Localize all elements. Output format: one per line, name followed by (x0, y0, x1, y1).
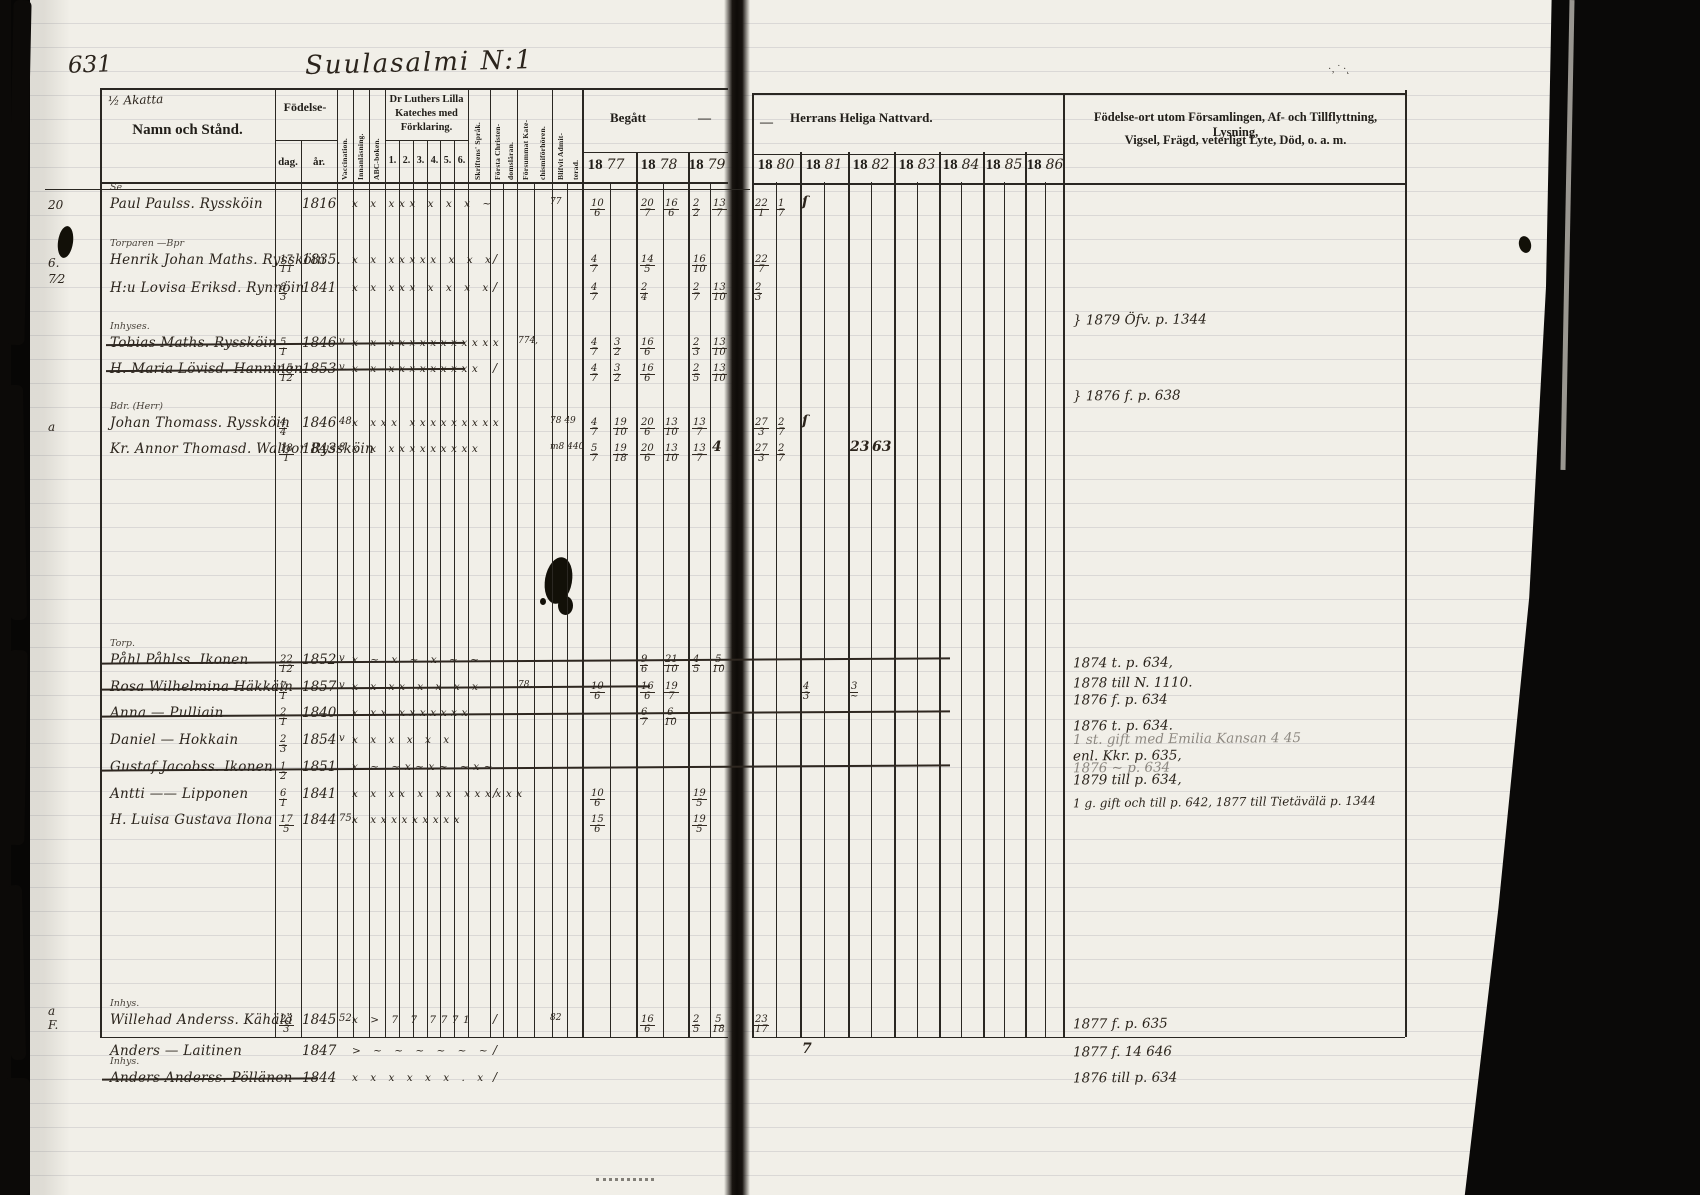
row-name: Willehad Anderss. Kähälä (110, 1012, 293, 1028)
communion-date-entry: 3~ (850, 676, 858, 701)
row-vaccination-mark: 48 (339, 416, 352, 427)
grid-line (399, 140, 400, 1037)
year-column-label: 18 80 (754, 156, 798, 174)
ink-blot-drip (558, 596, 573, 615)
communion-date-entry: 23 (850, 438, 869, 456)
note-entry: 1874 t. p. 634, (1073, 655, 1173, 672)
scan-left-blob-5 (4, 1078, 30, 1195)
grid-line (752, 95, 754, 1037)
communion-date-entry: 27 (692, 277, 700, 302)
header-first-christian-line1: Första Christen- (492, 92, 504, 180)
grid-line (552, 90, 553, 1037)
grid-line (939, 152, 941, 1037)
communion-date-entry: 195 (692, 783, 707, 808)
communion-date-entry: 47 (590, 412, 598, 437)
row-check-marks: x x xxxxxxxxxxx (352, 337, 503, 349)
row-check-marks: x ~ ~x~x~ ~x~ (352, 761, 497, 773)
kateches-subcolumn-number: 5. (441, 155, 454, 166)
scan-left-blob-4 (7, 885, 26, 1060)
margin-note: F. (48, 1018, 58, 1032)
grid-line (1063, 95, 1065, 1037)
scan-left-blob-2 (6, 385, 27, 620)
grid-line (369, 90, 370, 1037)
year-column-label: 18 79 (685, 156, 729, 174)
communion-date-entry: 166 (640, 332, 655, 357)
communion-date-entry: 273 (754, 438, 769, 463)
communion-date-entry: 156 (590, 809, 605, 834)
row-admitted-mark: m8 440 (550, 442, 584, 452)
row-check-marks: x xx xxxxxxx (352, 707, 472, 719)
row-check-marks: x xxx xxxxxxxxx (352, 417, 503, 429)
row-first-christian-mark: / (493, 1043, 497, 1057)
grid-line (100, 88, 102, 1038)
grid-line (752, 154, 1063, 155)
grid-line (385, 140, 468, 141)
row-check-marks: > ~ ~ ~ ~ ~ ~ (352, 1045, 492, 1057)
row-first-christian-mark: / (493, 1012, 497, 1026)
communion-date-entry: 22 (692, 193, 700, 218)
row-birth-day: 83 (279, 277, 287, 302)
grid-line (1405, 90, 1407, 1037)
header-script-language: Skriftens' Språk. (472, 92, 484, 180)
grid-line (776, 182, 777, 1037)
row-admitted-mark: 77 (550, 197, 561, 207)
note-entry: 1878 till N. 1110. (1073, 674, 1193, 691)
row-check-marks: x x xxx x x x ~ (352, 198, 496, 210)
communion-date-entry: 106 (590, 676, 605, 701)
communion-date-entry: 2110 (664, 649, 679, 674)
grid-line (961, 182, 962, 1037)
stray-marks: ·‚ ˙ ·˛ (1328, 64, 1350, 75)
note-entry: 1 g. gift och till p. 642, 1877 till Tie… (1073, 794, 1376, 811)
bottom-smudge (596, 1178, 654, 1184)
row-admitted-mark: 78 49 (550, 416, 576, 426)
note-entry: 1877 f. 14 646 (1073, 1044, 1172, 1061)
row-birth-day: 12 (279, 756, 287, 781)
row-birth-day: 21 (279, 702, 287, 727)
communion-date-entry: 145 (640, 249, 655, 274)
grid-line (848, 152, 850, 1037)
row-vaccination-mark: v. (339, 336, 347, 347)
margin-note: a (48, 1004, 55, 1018)
communion-date-entry: 27 (777, 438, 785, 463)
communion-date-entry: 227 (754, 249, 769, 274)
communion-date-entry: 1918 (613, 438, 628, 463)
grid-line (636, 152, 638, 1037)
row-birth-year: 1857 (302, 679, 336, 695)
row-birth-year: 1841 (302, 786, 336, 802)
communion-date-entry: 25 (692, 358, 700, 383)
kateches-subcolumn-number: 4. (428, 155, 441, 166)
year-column-label: 18 86 (1023, 156, 1067, 174)
margin-note: 7⁄2 (48, 272, 65, 286)
row-vaccination-mark: 8 (339, 442, 345, 453)
header-dash-right: — (760, 114, 773, 130)
row-name: Antti —— Lipponen (110, 786, 248, 802)
communion-date-entry: 2317 (754, 1009, 769, 1034)
communion-date-entry: ſ (802, 412, 808, 430)
kateches-subcolumn-number: 1. (386, 155, 399, 166)
row-check-marks: x x x x x x . x (352, 1072, 488, 1084)
header-abc-book: ABC-boken. (371, 92, 383, 180)
communion-date-entry: ſ (802, 193, 808, 211)
margin-note: a (48, 420, 55, 434)
row-vaccination-mark: v. (339, 362, 347, 373)
grid-line (871, 182, 872, 1037)
communion-date-entry: 47 (590, 249, 598, 274)
communion-date-entry: 106 (590, 193, 605, 218)
grid-line (337, 90, 338, 1037)
grid-line (1004, 182, 1005, 1037)
communion-date-entry: 518 (712, 1009, 725, 1034)
row-birth-day: 2212 (279, 649, 294, 674)
row-above-note: Se (110, 182, 122, 193)
communion-date-entry: 23 (754, 277, 762, 302)
page-number: 631 (68, 51, 113, 79)
margin-note: 20 (48, 198, 63, 212)
grid-line (752, 93, 1405, 95)
row-check-marks: x x xxxxxxxxx (352, 443, 482, 455)
communion-date-entry: 166 (664, 193, 679, 218)
note-entry: 1879 till p. 634, (1073, 772, 1182, 789)
grid-line (752, 1037, 1405, 1038)
communion-date-entry: 137 (692, 438, 707, 463)
year-column-label: 18 77 (584, 156, 628, 174)
communion-date-entry: 24 (640, 277, 648, 302)
row-name: Anna — Pulliain (110, 705, 224, 721)
row-name: Johan Thomass. Ryssköin (110, 415, 290, 431)
grid-line (427, 140, 428, 1037)
row-birth-day: 23 (279, 729, 287, 754)
row-name: H:u Lovisa Eriksd. Rynnöin (110, 280, 304, 296)
margin-top-note: ½ Akatta (108, 92, 164, 108)
row-vaccination-mark: v (339, 653, 345, 664)
margin-note: 6. (48, 256, 59, 270)
row-birth-day: 233 (279, 1009, 294, 1034)
book-spine-fold (724, 0, 750, 1195)
header-vaccination: Vaccination. (339, 92, 351, 180)
communion-date-entry: 166 (640, 676, 655, 701)
communion-date-entry: 47 (590, 332, 598, 357)
row-birth-day: 71 (279, 676, 287, 701)
row-check-marks: x x x x x x (352, 734, 454, 746)
note-entry: 1876 f. p. 634 (1073, 692, 1168, 709)
communion-date-entry: 4 (712, 438, 722, 456)
grid-line (752, 183, 1405, 185)
kateches-subcolumn-number: 3. (414, 155, 427, 166)
row-first-christian-mark: / (493, 252, 497, 266)
row-check-marks: x x xx x x x x (352, 681, 482, 693)
grid-line (100, 182, 728, 184)
grid-line (385, 90, 386, 1037)
grid-line (917, 182, 918, 1037)
note-entry: } 1879 Öfv. p. 1344 (1073, 311, 1207, 328)
row-check-marks: x xxxxxxxxx (352, 814, 464, 826)
grid-line (663, 182, 664, 1037)
row-birth-year: 1853 (302, 361, 336, 377)
communion-date-entry: 610 (664, 702, 677, 727)
communion-date-entry: 27 (777, 412, 785, 437)
header-dash-left: — (698, 110, 711, 126)
row-first-christian-mark: / (493, 1070, 497, 1084)
header-missed-line2: chismiförhören. (537, 92, 549, 180)
communion-date-entry: 166 (640, 1009, 655, 1034)
grid-line (413, 140, 414, 1037)
communion-date-entry: 221 (754, 193, 769, 218)
grid-line (440, 140, 441, 1037)
row-above-note: Torparen —Bpr (110, 238, 184, 249)
row-birth-year: 1844 (302, 1070, 336, 1086)
grid-line (824, 182, 825, 1037)
header-notes-line2: Vigsel, Frägd, veterligt Lyte, Död, o. a… (1073, 133, 1398, 148)
header-admitted-line2: terad. (570, 92, 582, 180)
communion-date-entry: 43 (802, 676, 810, 701)
grid-line (582, 90, 584, 1037)
communion-date-entry: 1310 (664, 438, 679, 463)
communion-date-entry: 206 (640, 438, 655, 463)
row-birth-year: 1852 (302, 652, 336, 668)
row-above-note: Inhys. (110, 1056, 139, 1067)
row-birth-year: 1843 (302, 441, 336, 457)
communion-date-entry: 45 (692, 649, 700, 674)
grid-line (582, 152, 728, 153)
header-birth-day: dag. (275, 156, 301, 168)
grid-line (534, 182, 535, 1037)
communion-date-entry: 67 (640, 702, 648, 727)
page-title-handwritten: Suulasalmi N:1 (305, 45, 534, 81)
grid-line (517, 90, 518, 1037)
header-admitted-line1: Blifvit Admit- (555, 92, 567, 180)
grid-line (983, 152, 985, 1037)
communion-date-entry: 1310 (712, 358, 727, 383)
communion-date-entry: 166 (640, 358, 655, 383)
grid-line (454, 140, 455, 1037)
grid-line (301, 140, 302, 1037)
row-first-christian-mark: / (493, 280, 497, 294)
communion-date-entry: 17 (777, 193, 785, 218)
communion-date-entry: 1310 (712, 332, 727, 357)
row-birth-year: 1846 (302, 335, 336, 351)
row-above-note: Torp. (110, 638, 135, 649)
grid-line (490, 90, 491, 1037)
communion-date-entry: 1310 (664, 412, 679, 437)
communion-date-entry: 32 (613, 358, 621, 383)
grid-line (800, 152, 802, 1037)
row-above-note: Inhys. (110, 998, 139, 1009)
row-birth-day: 1711 (279, 249, 294, 274)
year-column-label: 18 78 (637, 156, 681, 174)
note-entry: 1877 f. p. 635 (1073, 1016, 1168, 1033)
grid-line (894, 152, 896, 1037)
note-entry: 1876 till p. 634 (1073, 1070, 1177, 1087)
row-name: Påhl Påhlss. Ikonen (110, 652, 249, 668)
header-nattvard: Herrans Heliga Nattvard. (790, 110, 933, 126)
row-name: H. Luisa Gustava Ilona (110, 812, 273, 828)
row-birth-year: 1816 (302, 196, 336, 212)
note-entry: } 1876 f. p. 638 (1073, 388, 1181, 405)
header-missed-line1: Försummat Kate- (520, 92, 532, 180)
grid-line (610, 182, 611, 1037)
header-birth: Födelse- (273, 100, 337, 115)
communion-date-entry: 206 (640, 412, 655, 437)
communion-date-entry: 96 (640, 649, 648, 674)
header-kateches-line2: Kateches med (385, 108, 468, 119)
year-column-label: 18 81 (802, 156, 846, 174)
communion-date-entry: 57 (590, 438, 598, 463)
row-birth-year: 1840 (302, 705, 336, 721)
row-birth-year: 1841 (302, 280, 336, 296)
row-birth-year: 1851 (302, 759, 336, 775)
communion-date-entry: 1310 (712, 277, 727, 302)
header-reading: Innanläsning. (355, 92, 367, 180)
grid-line (45, 189, 750, 190)
kateches-subcolumn-number: 6. (455, 155, 468, 166)
row-birth-year: 1844 (302, 812, 336, 828)
row-birth-day: 1512 (279, 358, 294, 383)
grid-line (710, 182, 711, 1037)
year-column-label: 18 84 (939, 156, 983, 174)
year-column-label: 18 82 (849, 156, 893, 174)
row-birth-day: 181 (279, 438, 294, 463)
row-above-note: Bdr. (Herr) (110, 401, 163, 412)
row-first-christian-mark: / (493, 361, 497, 375)
row-name: Paul Paulss. Ryssköin (110, 196, 263, 212)
communion-date-entry: 25 (692, 1009, 700, 1034)
row-vaccination-mark: v (339, 680, 345, 691)
row-birth-day: 44 (279, 412, 287, 437)
grid-line (688, 152, 690, 1037)
row-vaccination-mark: 52 (339, 1013, 352, 1024)
grid-line (567, 182, 568, 1037)
communion-date-entry: 137 (692, 412, 707, 437)
communion-date-entry: 7 (802, 1040, 812, 1058)
communion-date-entry: 47 (590, 358, 598, 383)
kateches-subcolumn-number: 2. (400, 155, 413, 166)
grid-line (503, 182, 504, 1037)
row-check-marks: x x xx x xx xxxxxx (352, 788, 527, 800)
note-entry: 1 st. gift med Emilia Kansan 4 45 (1073, 730, 1301, 748)
row-check-marks: x x xxx x x x x (352, 282, 493, 294)
header-kateches-line1: Dr Luthers Lilla (385, 94, 468, 105)
header-birth-year: år. (301, 156, 337, 168)
communion-date-entry: 1610 (692, 249, 707, 274)
header-begatt: Begått (610, 110, 646, 126)
grid-line (275, 90, 276, 1037)
row-first-christian-mark: / (493, 786, 497, 800)
row-birth-day: 51 (279, 332, 287, 357)
row-birth-year: 1854 (302, 732, 336, 748)
year-column-label: 18 85 (982, 156, 1026, 174)
row-check-marks: x ~ x ~ x ~ ~ (352, 654, 483, 666)
communion-date-entry: 510 (712, 649, 725, 674)
grid-line (100, 88, 728, 90)
communion-date-entry: 32 (613, 332, 621, 357)
grid-line (353, 90, 354, 1037)
row-missed-mark: 78, (518, 680, 532, 690)
communion-date-entry: 1910 (613, 412, 628, 437)
header-first-christian-line2: domsläran. (505, 92, 517, 180)
header-name-column: Namn och Stånd. (100, 122, 275, 139)
row-name: Gustaf Jacobss. Ikonen (110, 759, 273, 775)
row-missed-mark: 774, (518, 336, 538, 346)
communion-date-entry: 137 (712, 193, 727, 218)
header-kateches-line3: Förklaring. (385, 122, 468, 133)
grid-line (1025, 152, 1027, 1037)
grid-line (1045, 182, 1046, 1037)
row-above-note: Inhyses. (110, 321, 150, 332)
row-name: Daniel — Hokkain (110, 732, 238, 748)
scanned-register-page: ·‚ ˙ ·˛ 631 Suulasalmi N:1 ½ Akatta Namn… (0, 0, 1700, 1195)
grid-line (100, 1037, 728, 1038)
row-check-marks: x x xxxxxxxxx (352, 363, 482, 375)
row-birth-year: 1847 (302, 1043, 336, 1059)
row-vaccination-mark: v (339, 733, 345, 744)
row-check-marks: x > 7 7 7771 (352, 1014, 474, 1026)
row-birth-year: 1845 (302, 1012, 336, 1028)
row-birth-year: 1835. (302, 252, 341, 268)
scan-left-blob-3 (5, 650, 27, 845)
communion-date-entry: 197 (664, 676, 679, 701)
grid-line (275, 140, 337, 141)
communion-date-entry: 273 (754, 412, 769, 437)
ink-blot-dot (540, 598, 546, 605)
row-birth-day: 175 (279, 809, 294, 834)
communion-date-entry: 195 (692, 809, 707, 834)
communion-date-entry: 106 (590, 783, 605, 808)
grid-line (468, 90, 469, 1037)
communion-date-entry: 63 (872, 438, 891, 456)
row-admitted-mark: 82 (550, 1013, 561, 1023)
year-column-label: 18 83 (895, 156, 939, 174)
communion-date-entry: 23 (692, 332, 700, 357)
communion-date-entry: 47 (590, 277, 598, 302)
row-birth-year: 1846 (302, 415, 336, 431)
row-check-marks: x x xxxxx x x x (352, 254, 495, 266)
communion-date-entry: 207 (640, 193, 655, 218)
row-birth-day: 61 (279, 783, 287, 808)
